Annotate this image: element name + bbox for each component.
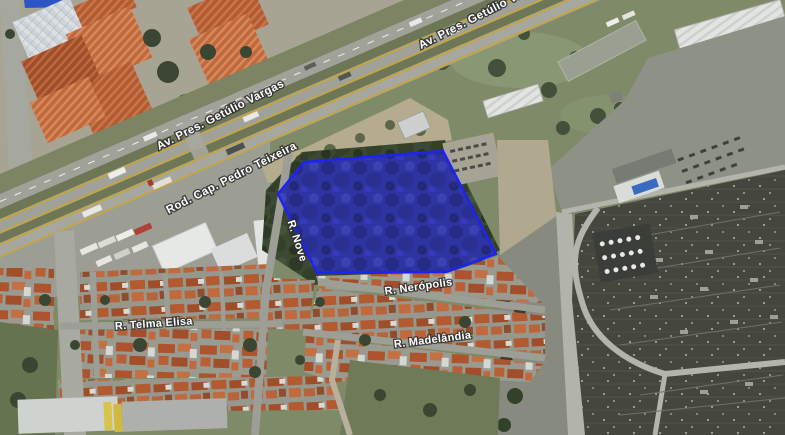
switchyard [572,170,785,435]
warehouse-roof [122,398,228,432]
yellow-container [103,402,112,430]
yellow-container [113,404,122,432]
warehouse-roof [17,396,118,433]
transformer-bank [592,223,658,282]
satellite-map[interactable]: Av. Pres. Getúlio Vargas Av. Pres. Getúl… [0,0,785,435]
